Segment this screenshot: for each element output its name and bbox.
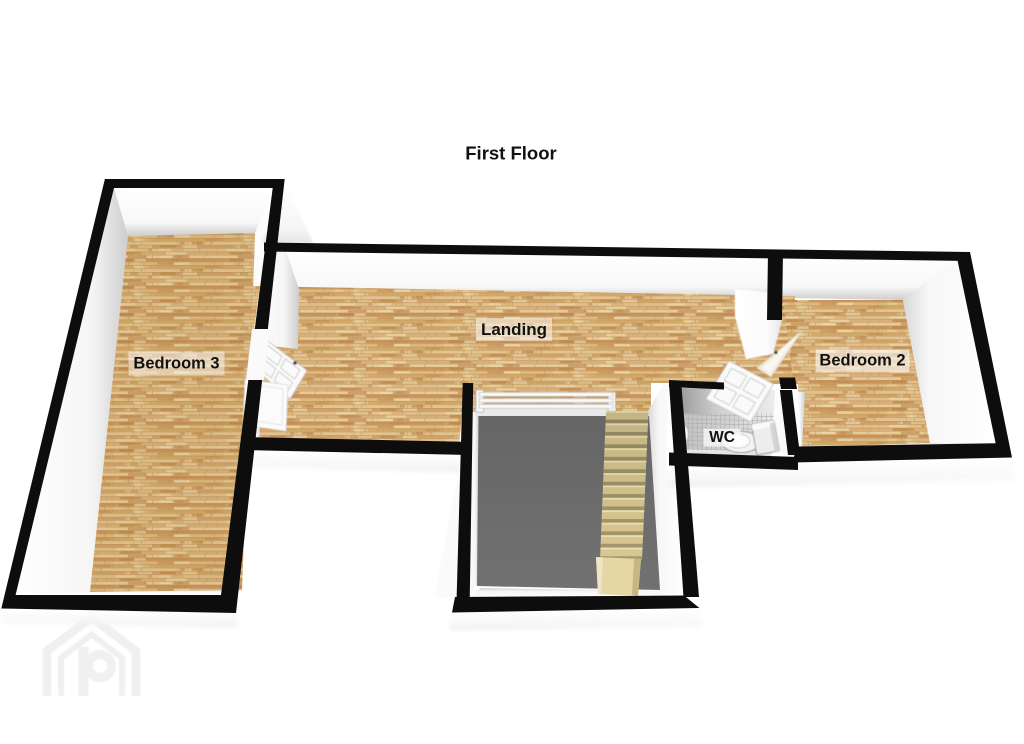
svg-text:First Floor: First Floor [465,142,556,163]
svg-text:Bedroom 3: Bedroom 3 [133,355,219,373]
svg-text:WC: WC [709,429,735,446]
svg-text:Bedroom 2: Bedroom 2 [819,352,905,370]
svg-text:Landing: Landing [481,320,547,339]
